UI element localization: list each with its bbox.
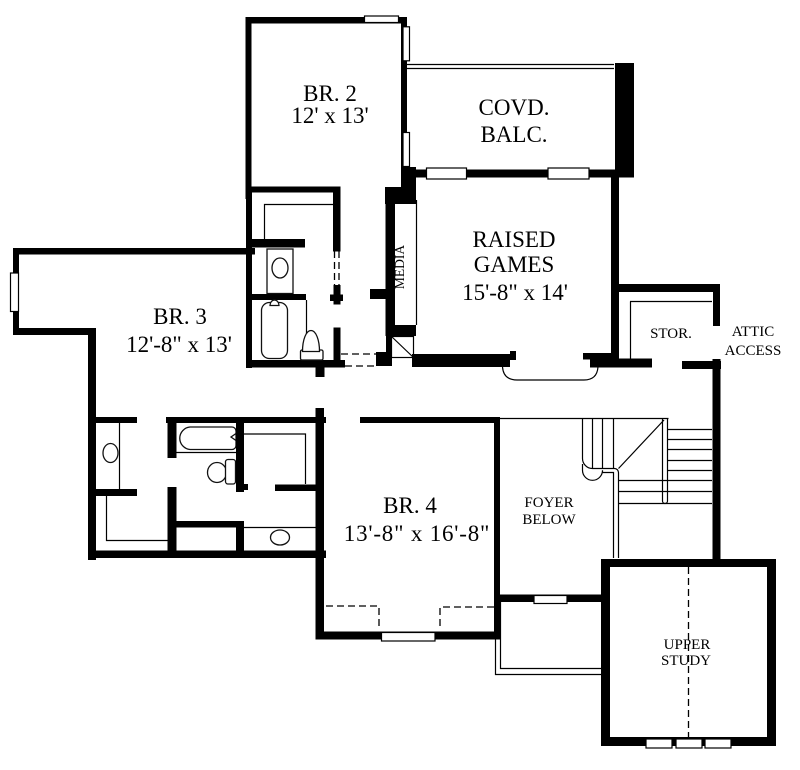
svg-text:FOYER: FOYER [524,495,573,511]
svg-text:13'-8" x 16'-8": 13'-8" x 16'-8" [344,521,490,546]
svg-text:ACCESS: ACCESS [725,343,782,359]
svg-text:BR. 3: BR. 3 [153,304,207,329]
svg-text:BELOW: BELOW [522,512,576,528]
svg-text:ATTIC: ATTIC [732,324,775,340]
svg-text:15'-8" x 14': 15'-8" x 14' [462,280,568,305]
svg-text:12'-8" x 13': 12'-8" x 13' [126,332,232,357]
svg-text:GAMES: GAMES [474,252,555,277]
svg-text:RAISED: RAISED [472,227,555,252]
svg-text:BR. 4: BR. 4 [383,493,437,518]
svg-text:COVD.: COVD. [479,95,550,120]
svg-text:UPPER: UPPER [664,637,711,653]
svg-text:BALC.: BALC. [480,122,547,147]
svg-text:STUDY: STUDY [661,653,711,669]
svg-text:MEDIA: MEDIA [392,245,407,289]
svg-text:12' x 13': 12' x 13' [291,103,368,128]
svg-text:STOR.: STOR. [650,326,692,342]
